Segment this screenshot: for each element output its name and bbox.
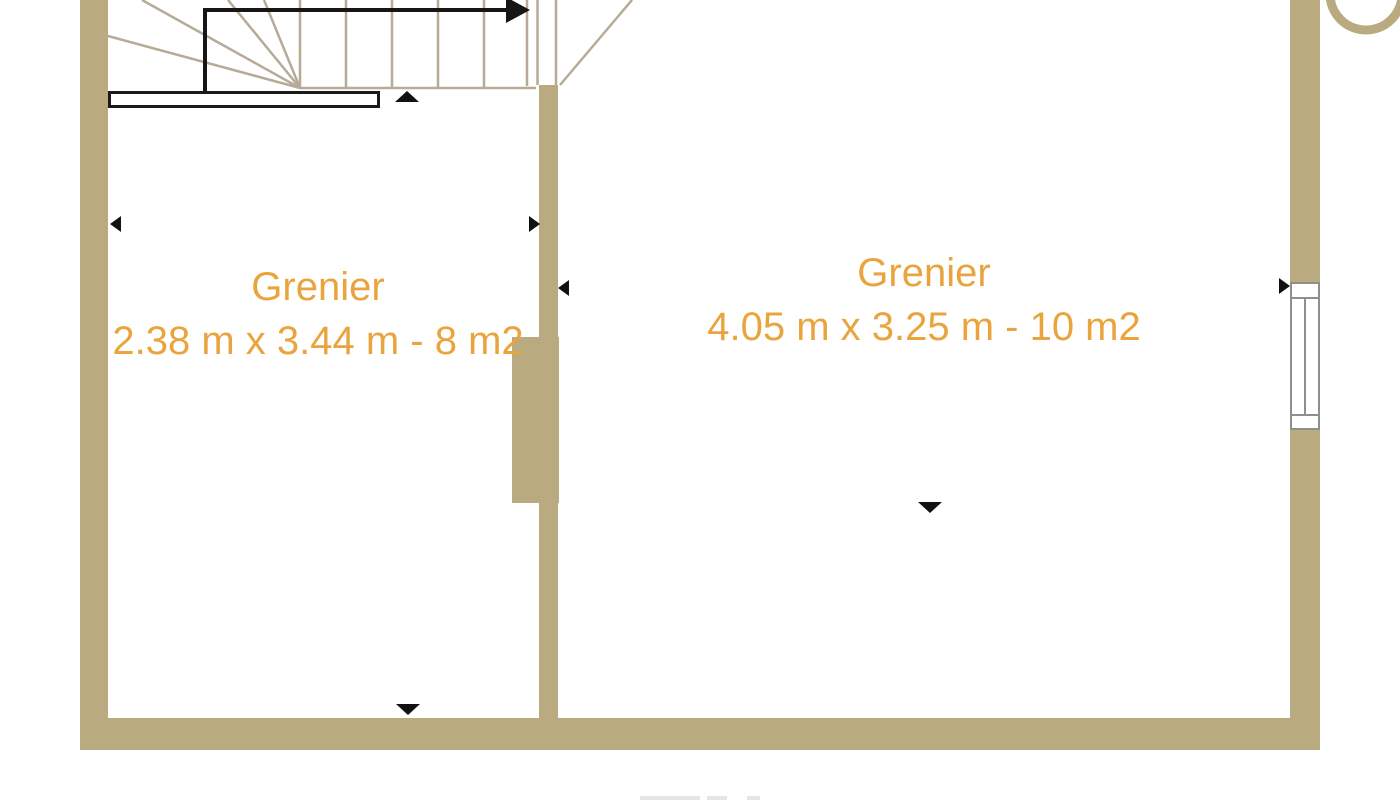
- door-leaf-line: [560, 0, 632, 85]
- measure-arrow-left-icon: [558, 280, 569, 296]
- compass-ring-icon: [1330, 0, 1400, 30]
- measure-arrow-down-icon: [396, 704, 420, 715]
- watermark-remnant: [747, 796, 760, 800]
- room-label-left: Grenier 2.38 m x 3.44 m - 8 m2: [98, 260, 538, 368]
- measure-arrow-left-icon: [110, 216, 121, 232]
- room-label-right: Grenier 4.05 m x 3.25 m - 10 m2: [674, 246, 1174, 354]
- room-name: Grenier: [674, 246, 1174, 300]
- stair-landing: [108, 91, 380, 108]
- room-dimensions: 4.05 m x 3.25 m - 10 m2: [674, 300, 1174, 354]
- room-dimensions: 2.38 m x 3.44 m - 8 m2: [98, 314, 538, 368]
- window-center-line: [1304, 299, 1306, 416]
- measure-arrow-down-icon: [918, 502, 942, 513]
- room-name: Grenier: [98, 260, 538, 314]
- stair-route-line-horizontal: [203, 8, 508, 12]
- watermark-remnant: [640, 796, 700, 800]
- stairs-linework: [0, 0, 1400, 800]
- watermark-remnant: [707, 796, 727, 800]
- floor-plan: Grenier 2.38 m x 3.44 m - 8 m2 Grenier 4…: [0, 0, 1400, 800]
- measure-arrow-right-icon: [529, 216, 540, 232]
- window: [1290, 282, 1320, 430]
- measure-arrow-right-icon: [1279, 278, 1290, 294]
- measure-arrow-up-icon: [395, 91, 419, 102]
- winder-tread-lines: [108, 0, 632, 88]
- stair-route-line-vertical: [203, 8, 207, 91]
- stair-up-arrow-icon: [506, 0, 530, 23]
